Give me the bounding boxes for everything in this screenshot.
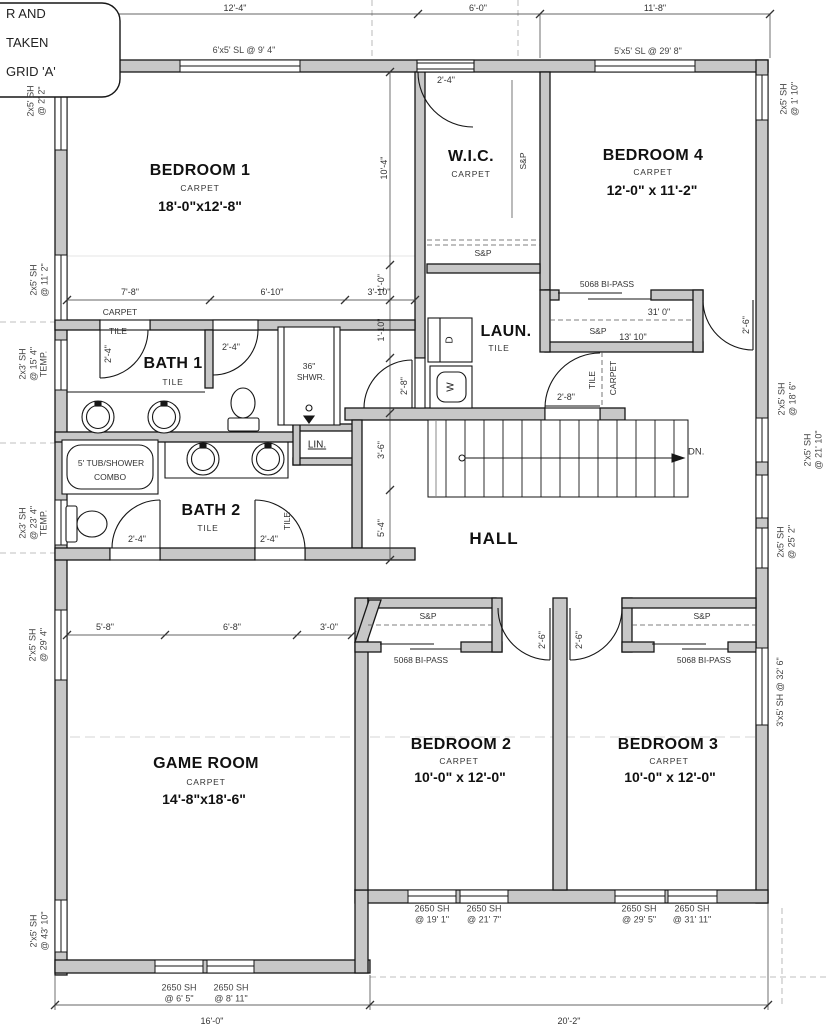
dim-v-2: 1'-0": [376, 274, 386, 292]
transition-tile-label: TILE: [109, 326, 127, 336]
room-bedroom2-floor: CARPET: [439, 756, 478, 766]
dim-door-bedroom3: 2'-6": [574, 631, 584, 649]
room-gameroom-name: GAME ROOM: [153, 755, 259, 773]
washer-label: W: [446, 382, 457, 391]
room-laundry-name: LAUN.: [481, 323, 532, 341]
window-label-bottom-1: 2650 SH@ 19' 1": [414, 904, 449, 925]
window-label-right-2: 2'x5' SH@ 18' 6": [777, 382, 798, 416]
dim-door-wic: 2'-4": [437, 75, 455, 85]
window-label-bottom-2: 2650 SH@ 21' 7": [466, 904, 501, 925]
room-bedroom1-size: 18'-0"x12'-8": [158, 198, 242, 214]
shower-label: SHWR.: [297, 372, 325, 382]
room-bedroom2-name: BEDROOM 2: [411, 736, 512, 754]
room-bedroom4-name: BEDROOM 4: [603, 147, 704, 165]
dim-top-2: 6'-0": [469, 3, 487, 13]
dim-closet-31: 31' 0": [648, 307, 670, 317]
room-bedroom2-size: 10'-0" x 12'-0": [414, 769, 506, 785]
dim-bottom-left: 16'-0": [201, 1016, 224, 1024]
window-label-left-6: 2'x5' SH@ 43' 10": [29, 911, 50, 950]
wic-bottom-shelf-label: S&P: [474, 248, 491, 258]
dim-v-1: 10'-4": [379, 157, 389, 180]
bedroom3-bipass-label: 5068 BI-PASS: [677, 655, 731, 665]
reference-lines: [0, 0, 828, 1005]
room-hall-name: HALL: [469, 529, 518, 549]
dim-bath1-row-1: 7'-8": [121, 287, 139, 297]
bath2-door-tile: TILE: [282, 512, 292, 530]
window-label-bottom-6: 2650 SH@ 8' 11": [213, 983, 248, 1004]
plan-drawing: [0, 0, 830, 1024]
bedroom2-closet-shelf-label: S&P: [419, 611, 436, 621]
room-bedroom1-floor: CARPET: [180, 183, 219, 193]
dim-door-bedroom2: 2'-6": [537, 631, 547, 649]
bedroom4-closet-shelf-label: S&P: [589, 326, 606, 336]
bedroom2-bipass-label: 5068 BI-PASS: [394, 655, 448, 665]
wic-shelf-label: S&P: [518, 152, 528, 169]
dim-top-3: 11'-8": [644, 3, 666, 13]
window-label-top-1: 6'x5' SL @ 9' 4": [213, 45, 276, 56]
window-label-left-3: 2x3' SH@ 15' 4"TEMP.: [17, 347, 49, 381]
dim-bottom-right: 20'-2": [558, 1016, 581, 1024]
bedroom4-bipass-label: 5068 BI-PASS: [580, 279, 634, 289]
room-bedroom1-name: BEDROOM 1: [150, 162, 251, 180]
dim-door-bath1: 2'-4": [103, 345, 113, 363]
dim-closet-1310: 13' 10": [619, 332, 646, 342]
bedroom3-closet-shelf-label: S&P: [693, 611, 710, 621]
dim-bath1-row-2: 6'-10": [261, 287, 284, 297]
linen-closet-label: LIN.: [308, 440, 326, 451]
window-label-top-2: 5'x5' SL @ 29' 8": [614, 46, 682, 57]
dim-door-bedroom4: 2'-6": [741, 316, 751, 334]
room-wic-name: W.I.C.: [448, 148, 494, 166]
dim-door-bath2-left: 2'-4": [128, 534, 146, 544]
window-label-left-1: 2x5' SH@ 2' 2": [26, 85, 47, 116]
window-label-right-1: 2x5' SH@ 1' 10": [779, 82, 800, 116]
transition-carpet-label: CARPET: [103, 307, 137, 317]
tub-label-1: 5' TUB/SHOWER: [78, 458, 144, 468]
room-bedroom3-name: BEDROOM 3: [618, 736, 719, 754]
dim-gameroom-row-3: 3'-0": [320, 622, 338, 632]
dryer-label: D: [445, 336, 456, 343]
dim-gameroom-row-2: 6'-8": [223, 622, 241, 632]
room-bath1-floor: TILE: [162, 377, 183, 387]
dim-door-bath2-right: 2'-4": [260, 534, 278, 544]
dim-door-hall: 2'-8": [557, 392, 575, 402]
room-bath2-floor: TILE: [197, 523, 218, 533]
window-label-right-4: 2x5' SH@ 25' 2": [776, 525, 797, 559]
note-line-1: R AND: [6, 1, 46, 27]
shower-size-label: 36": [303, 361, 315, 371]
hall-transition-tile: TILE: [587, 371, 597, 389]
window-label-left-2: 2x5' SH@ 11' 2": [29, 263, 50, 296]
room-bedroom3-size: 10'-0" x 12'-0": [624, 769, 716, 785]
hall-transition-carpet: CARPET: [608, 361, 618, 395]
floor-plan: R AND TAKEN GRID 'A' 12'-4" 6'-0" 11'-8"…: [0, 0, 830, 1024]
window-label-left-4: 2x3' SH@ 23' 4"TEMP.: [17, 506, 49, 540]
stairs: [428, 420, 688, 497]
window-label-right-5: 3'x5' SH @ 32' 6": [775, 657, 786, 727]
dim-v-4: 3'-6": [376, 441, 386, 459]
window-label-bottom-5: 2650 SH@ 6' 5": [161, 983, 196, 1004]
fixtures-layer: [62, 318, 472, 542]
tub-label-2: COMBO: [94, 472, 126, 482]
room-wic-floor: CARPET: [451, 169, 490, 179]
stairs-down-label: DN.: [688, 447, 704, 458]
room-gameroom-size: 14'-8"x18'-6": [162, 791, 246, 807]
note-line-2: TAKEN: [6, 30, 48, 56]
room-bedroom4-floor: CARPET: [633, 167, 672, 177]
dim-top-1: 12'-4": [224, 3, 247, 13]
room-gameroom-floor: CARPET: [186, 777, 225, 787]
dim-door-bath1-hall: 2'-8": [399, 377, 409, 395]
window-label-left-5: 2'x5' SH@ 29' 4": [28, 628, 49, 662]
dim-v-3: 1'-10": [376, 319, 386, 342]
note-line-3: GRID 'A': [6, 59, 56, 85]
room-bath1-name: BATH 1: [144, 355, 203, 373]
room-bedroom4-size: 12'-0" x 11'-2": [607, 182, 698, 198]
dim-v-5: 5'-4": [376, 519, 386, 537]
room-bedroom3-floor: CARPET: [649, 756, 688, 766]
window-label-right-3: 2'x5' SH@ 21' 10": [803, 430, 824, 469]
dim-gameroom-row-1: 5'-8": [96, 622, 114, 632]
room-bath2-name: BATH 2: [182, 502, 241, 520]
room-laundry-floor: TILE: [488, 343, 509, 353]
dim-door-toilet1: 2'-4": [222, 342, 240, 352]
window-label-bottom-4: 2650 SH@ 31' 11": [673, 904, 711, 925]
window-label-bottom-3: 2650 SH@ 29' 5": [621, 904, 656, 925]
